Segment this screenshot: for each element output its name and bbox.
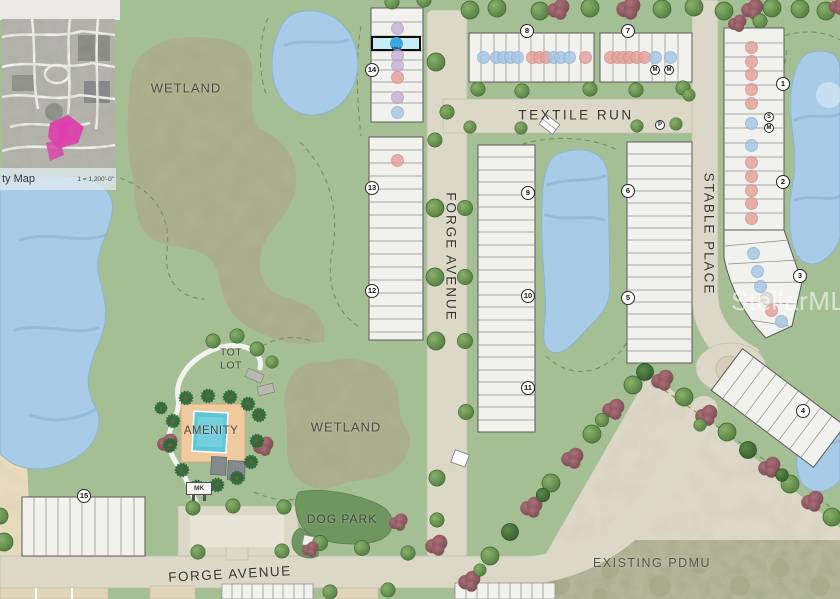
unit-status-dot[interactable] [391,59,404,72]
unit-status-dot[interactable] [391,154,404,167]
utility-marker: P [655,120,665,130]
lot-block-marker: 2 [776,175,790,189]
lot-block-marker: 15 [77,489,91,503]
watermark: StellarMLS [731,286,840,317]
unit-status-dot[interactable] [664,51,677,64]
unit-status-dot[interactable] [745,197,758,210]
unit-status-dot[interactable] [391,71,404,84]
unit-status-dot[interactable] [745,41,758,54]
unit-status-dot[interactable] [745,184,758,197]
existing-pdmu-label: EXISTING PDMU [593,556,711,570]
unit-status-dot[interactable] [745,97,758,110]
site-plan-graphics [0,0,840,599]
vicinity-map-inset [2,19,115,168]
unit-status-dot[interactable] [649,51,662,64]
utility-marker: M [664,65,674,75]
mail-kiosk: MK [186,482,212,495]
unit-status-dot[interactable] [391,22,404,35]
lot-block-marker: 6 [621,184,635,198]
unit-status-dot[interactable] [579,51,592,64]
lot-block-marker: 10 [521,289,535,303]
dog-park-label: DOG PARK [307,512,377,526]
lot-block-marker: 1 [776,77,790,91]
unit-status-dot[interactable] [477,51,490,64]
site-plan-map: ty Map 1 = 1,200'-0" WETLAND WETLAND TEX… [0,0,840,599]
unit-status-dot[interactable] [745,68,758,81]
unit-status-dot[interactable] [747,247,760,260]
lot-block-marker: 5 [621,291,635,305]
unit-status-dot[interactable] [751,265,764,278]
street-label-stable-place: STABLE PLACE [702,173,717,296]
inset-caption-bar: ty Map 1 = 1,200'-0" [0,168,116,190]
unit-status-dot[interactable] [745,170,758,183]
utility-marker: M [764,123,774,133]
unit-status-dot[interactable] [391,106,404,119]
unit-status-dot[interactable] [745,212,758,225]
lot-block-marker: 12 [365,284,379,298]
lot-block-marker: 7 [621,24,635,38]
unit-status-dot[interactable] [511,51,524,64]
utility-marker: M [650,65,660,75]
street-label-textile-run: TEXTILE RUN [518,108,633,123]
lot-block-marker: 14 [365,63,379,77]
amenity-label: AMENITY [184,425,239,437]
unit-status-dot[interactable] [745,117,758,130]
lot-block-marker: 9 [521,186,535,200]
unit-status-dot[interactable] [563,51,576,64]
lot-block-marker: 4 [796,404,810,418]
vicinity-map-image [2,19,115,168]
utility-marker: S [764,112,774,122]
page-margin [0,0,120,20]
lot-block-marker: 8 [520,24,534,38]
lot-block-marker: 3 [793,269,807,283]
tot-lot-label: TOT LOT [214,346,248,371]
unit-status-dot[interactable] [391,91,404,104]
unit-status-dot[interactable] [745,139,758,152]
unit-status-dot[interactable] [745,156,758,169]
lot-block-marker: 11 [521,381,535,395]
unit-status-dot[interactable] [745,55,758,68]
wetland-label-top: WETLAND [151,81,222,96]
unit-status-dot[interactable] [745,83,758,96]
street-label-forge-avenue: FORGE AVENUE [444,192,459,322]
inset-caption: ty Map [2,173,35,185]
inset-scale: 1 = 1,200'-0" [77,176,114,183]
lot-block-marker: 13 [365,181,379,195]
wetland-label-bottom: WETLAND [311,420,382,435]
